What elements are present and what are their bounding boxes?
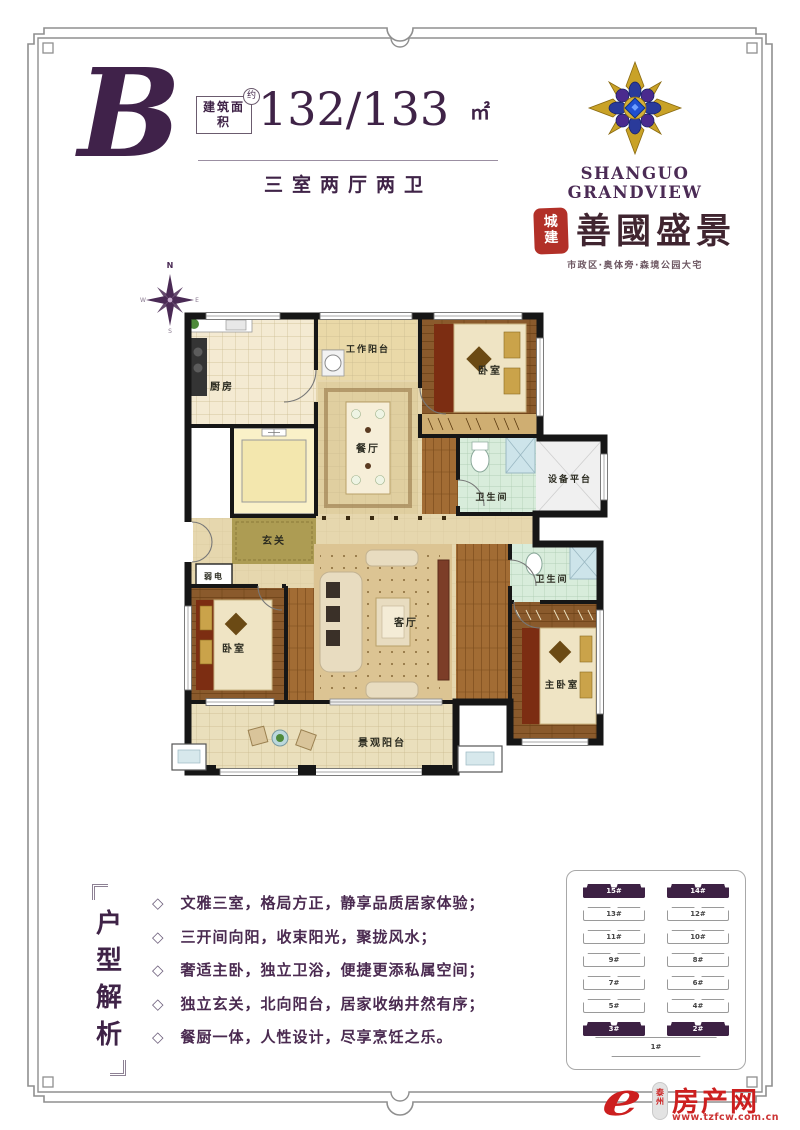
label-view-balcony: 景观阳台 [358,736,406,749]
room-master-bedroom [510,602,600,742]
jewel-emblem-icon [520,60,750,156]
list-item: ◇三开间向阳，收束阳光，聚拢风水； [152,927,532,948]
building-item: 1# [595,1037,717,1057]
building-item: 13# [583,907,645,921]
entry-gap [183,522,193,562]
siteplan-diagram: 15#13#11#9#7#5#3# 14#12#10#8#6#4#2# 1# [566,870,746,1070]
label-kitchen: 厨房 [210,380,234,393]
bullet-text: 餐厨一体，人性设计，尽享烹饪之乐。 [181,1027,453,1048]
toilet-icon [526,553,542,575]
building-item: 6# [667,976,729,990]
siteplan-right-column: 14#12#10#8#6#4#2# [667,884,729,1036]
room-view-balcony [188,702,456,772]
logo-site-url: www.tzfcw.com.cn [672,1112,779,1123]
building-item: 7# [583,976,645,990]
room-count-text: 三室两厅两卫 [198,170,498,197]
quote-bracket-open [92,884,108,900]
room-living [314,544,452,702]
label-master-bedroom: 主卧室 [545,679,580,691]
list-item: ◇餐厨一体，人性设计，尽享烹饪之乐。 [152,1027,532,1048]
room-bath-lower [510,544,600,602]
tv-cabinet [438,560,449,680]
bullet-text: 奢适主卧，独立卫浴，便捷更添私属空间； [181,960,485,981]
building-item: 8# [667,953,729,967]
building-item: 12# [667,907,729,921]
toilet-icon [471,448,489,472]
brand-name-en: SHANGUO GRANDVIEW [520,164,750,202]
label-bath-upper: 卫生间 [475,491,508,503]
page: { "unit": { "letter": "B", "area_label":… [0,0,800,1130]
diamond-bullet-icon: ◇ [152,1027,165,1048]
label-bath-lower: 卫生间 [535,573,568,585]
label-work-balcony: 工作阳台 [346,343,390,355]
building-item: 9# [583,953,645,967]
building-item: 15# [583,884,645,898]
diamond-bullet-icon: ◇ [152,994,165,1015]
portal-logo: e 泰州 房产网 www.tzfcw.com.cn [608,1078,798,1128]
label-bedroom-north: 卧室 [478,364,502,377]
bullet-text: 独立玄关，北向阳台，居家收纳井然有序； [181,994,485,1015]
siteplan-left-column: 15#13#11#9#7#5#3# [583,884,645,1036]
label-living: 客厅 [393,616,418,629]
list-item: ◇独立玄关，北向阳台，居家收纳井然有序； [152,994,532,1015]
building-item: 2# [667,1022,729,1036]
elevator-core [188,426,316,518]
quote-bracket-close [110,1060,126,1076]
building-item: 4# [667,999,729,1013]
svg-text:E: E [195,297,199,304]
building-item: 10# [667,930,729,944]
unit-type-letter: B [78,52,181,174]
brand-tagline: 市政区·奥体旁·森境公园大宅 [520,258,750,271]
analysis-title-text: 户型解析 [94,906,124,1054]
diamond-bullet-icon: ◇ [152,960,165,981]
room-kitchen [188,316,316,426]
seal-char-bottom: 建 [534,229,569,246]
building-item: 5# [583,999,645,1013]
area-label-box: 建筑面积 [196,96,252,134]
diamond-bullet-icon: ◇ [152,927,165,948]
label-bedroom-west: 卧室 [222,642,246,655]
analysis-title: 户型解析 [92,884,126,1076]
washer-icon [325,355,341,371]
diamond-bullet-icon: ◇ [152,893,165,914]
building-item: 3# [583,1022,645,1036]
bullet-text: 文雅三室，格局方正，静享品质居家体验； [181,893,485,914]
seal-char-top: 城 [533,213,568,230]
area-value: 132/133 [258,86,449,132]
brand-name-cn: 善國盛景 [576,208,736,256]
building-item: 14# [667,884,729,898]
brand-seal: 城 建 [533,207,569,254]
bullet-text: 三开间向阳，收束阳光，聚拢风水； [181,927,437,948]
area-unit: ㎡ [470,96,490,125]
label-weak-power: 弱电 [204,571,224,581]
svg-text:N: N [167,261,174,270]
label-equipment: 设备平台 [548,473,592,485]
label-dining: 餐厅 [355,442,380,455]
list-item: ◇奢适主卧，独立卫浴，便捷更添私属空间； [152,960,532,981]
label-foyer: 玄关 [262,534,286,547]
brand-block: SHANGUO GRANDVIEW 城 建 善國盛景 市政区·奥体旁·森境公园大… [520,60,750,271]
divider-line [198,160,498,161]
logo-swoosh-icon: e [599,1076,647,1122]
svg-text:W: W [140,297,146,304]
floorplan: 厨房 工作阳台 卧室 餐厅 卫生间 设备平台 玄关 弱电 卧室 客厅 卫生间 主… [170,310,642,788]
analysis-bullet-list: ◇文雅三室，格局方正，静享品质居家体验； ◇三开间向阳，收束阳光，聚拢风水； ◇… [152,893,532,1061]
logo-region-capsule: 泰州 [652,1082,668,1120]
list-item: ◇文雅三室，格局方正，静享品质居家体验； [152,893,532,914]
building-item: 11# [583,930,645,944]
